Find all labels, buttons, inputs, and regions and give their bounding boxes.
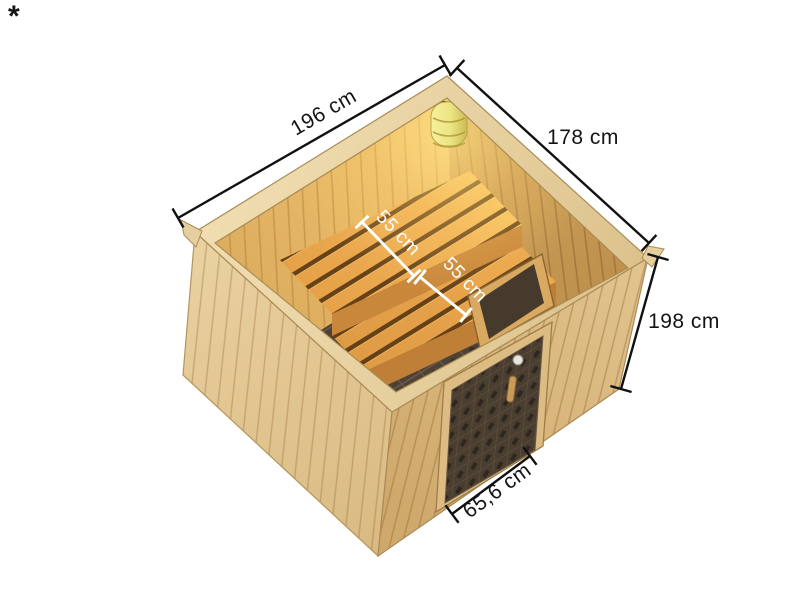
product-dimension-image: 196 cm 178 cm 198 cm 65,6 cm 55 cm 55 cm… [0, 0, 800, 601]
height-dimension-label: 198 cm [648, 310, 720, 333]
depth-dimension-label: 178 cm [547, 126, 619, 149]
door-knob [513, 355, 523, 365]
footnote-asterisk: * [8, 0, 20, 33]
sauna-isometric-illustration: 196 cm 178 cm 198 cm 65,6 cm 55 cm 55 cm… [0, 0, 800, 601]
